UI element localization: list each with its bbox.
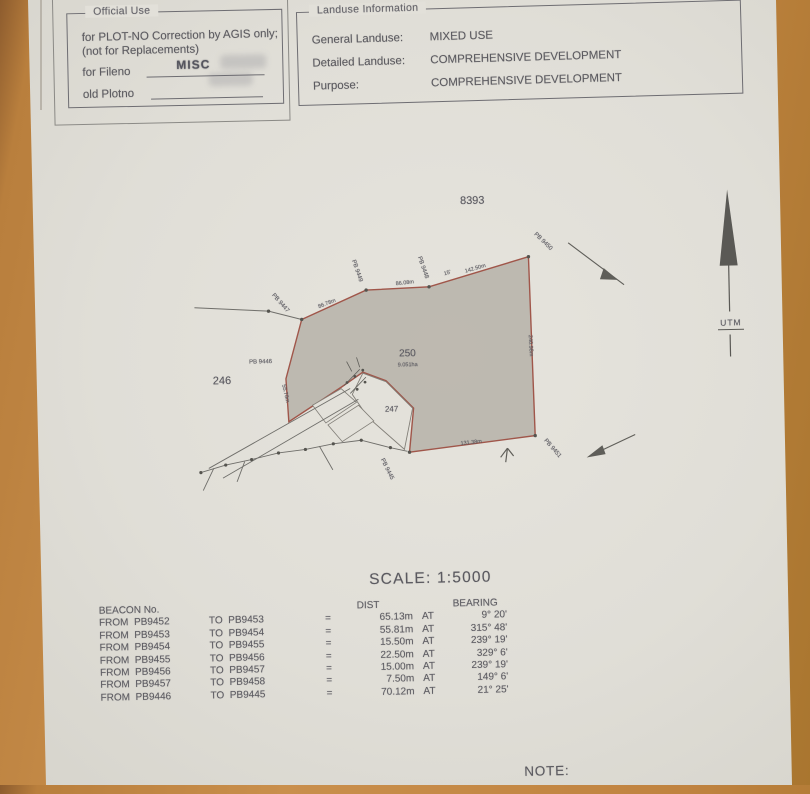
cell-to: TO PB9445 [210, 688, 310, 702]
cell-at: AT [414, 661, 444, 674]
road-spur-2 [237, 462, 245, 482]
utm-label: UTM [720, 317, 742, 327]
landuse-box: Landuse Information General Landuse:MIXE… [296, 0, 743, 106]
cell-dist: 70.12m [348, 686, 414, 700]
beacon-pb9445-label: PB 9445 [379, 458, 395, 482]
road-spur-3 [319, 446, 332, 470]
small-up-arrow-mark [500, 448, 513, 462]
fileno-label: for Fileno [82, 65, 130, 80]
cell-eq: = [310, 650, 348, 663]
cell-at: AT [414, 673, 444, 686]
beacon-dot [267, 309, 270, 312]
detailed-landuse-row: Detailed Landuse:COMPREHENSIVE DEVELOPME… [312, 49, 621, 70]
detailed-landuse-label: Detailed Landuse: [312, 54, 430, 69]
beacon-dot [199, 471, 202, 474]
note-label: NOTE: [524, 763, 570, 779]
plot-250-label: 250 [399, 348, 416, 359]
general-landuse-label: General Landuse: [312, 31, 430, 46]
photo-of-survey-document: { "official_box": { "legend": "Official … [0, 0, 810, 785]
header-spacer [309, 601, 347, 614]
beacon-dot [304, 448, 307, 451]
official-line2: (not for Replacements) [82, 43, 199, 59]
general-landuse-row: General Landuse:MIXED USE [312, 30, 494, 47]
detailed-landuse-value: COMPREHENSIVE DEVELOPMENT [430, 49, 621, 66]
plotno-label: old Plotno [83, 87, 134, 102]
beacon-dot [360, 439, 363, 442]
landuse-legend: Landuse Information [309, 1, 427, 16]
beacon-dot [389, 446, 392, 449]
map-arrow-topright [568, 242, 624, 286]
fileno-smudge [220, 54, 266, 69]
map-arrow-bottomright [586, 435, 635, 458]
cell-eq: = [309, 625, 347, 638]
cell-at: AT [414, 685, 444, 698]
official-use-box: Official Use for PLOT-NO Correction by A… [66, 9, 284, 109]
plot-250-area-label: 9.051ha [398, 362, 419, 368]
cell-at: AT [413, 611, 443, 624]
header-spacer [423, 598, 453, 611]
cell-eq: = [310, 687, 348, 700]
general-landuse-value: MIXED USE [430, 30, 494, 44]
cell-at: AT [413, 623, 443, 636]
distance-seg3-label: 15' [443, 270, 452, 278]
purpose-row: Purpose:COMPREHENSIVE DEVELOPMENT [313, 72, 622, 93]
beacon-pb9446-label: PB 9446 [249, 359, 273, 365]
purpose-label: Purpose: [313, 77, 431, 92]
plot-247-label: 247 [385, 404, 399, 413]
beacon-pb9451-label: PB 9451 [542, 438, 562, 460]
distance-right-edge-label: 240.98m [527, 335, 534, 357]
cell-eq: = [309, 613, 347, 626]
cell-from: FROM PB9446 [100, 690, 210, 705]
distance-bottom-edge-label: 131.38m [460, 439, 482, 447]
beacon-pb9449-label: PB 9449 [350, 259, 363, 283]
cell-eq: = [310, 675, 348, 688]
distance-seg2-label: 86.08m [395, 279, 414, 287]
fileno-handwritten-value: MISC [176, 57, 210, 72]
beacon-dot [224, 463, 227, 466]
beacon-pb9447-label: PB 9447 [270, 293, 290, 315]
cell-at: AT [414, 648, 444, 661]
document-content: Official Use for PLOT-NO Correction by A… [0, 0, 810, 794]
beacon-dot [332, 442, 335, 445]
cell-bearing: 21° 25' [444, 684, 508, 698]
plotno-underline [151, 95, 263, 99]
beacon-pb9450-label: PB 9450 [532, 232, 553, 253]
beacon-pb9448-label: PB 9448 [416, 256, 429, 280]
survey-map: 8393 246 250 9.051ha 247 PB 9447 PB 9449… [0, 132, 810, 589]
purpose-value: COMPREHENSIVE DEVELOPMENT [431, 72, 622, 89]
cell-at: AT [413, 636, 443, 649]
north-arrow-icon: UTM [715, 189, 744, 357]
cell-eq: = [310, 663, 348, 676]
official-use-legend: Official Use [85, 4, 158, 18]
scale-text: SCALE: 1:5000 [369, 569, 492, 590]
beacon-table: BEACON No. DIST BEARING FROM PB9452TO PB… [99, 597, 519, 705]
fileno-smudge2 [209, 72, 253, 86]
beacon-dot [277, 451, 280, 454]
cell-eq: = [309, 638, 347, 651]
plot-246-label: 246 [213, 375, 232, 387]
plot-8393-label: 8393 [460, 195, 485, 208]
